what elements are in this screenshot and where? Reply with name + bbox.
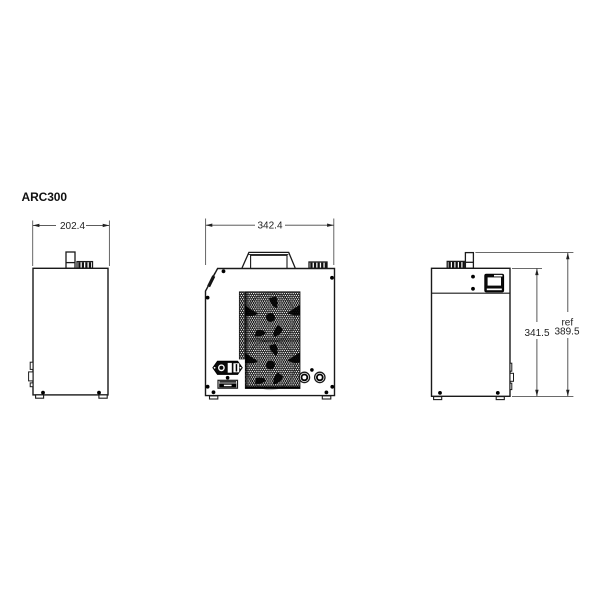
svg-text:342.4: 342.4: [257, 221, 282, 232]
svg-text:341.5: 341.5: [524, 328, 549, 339]
svg-text:ARC300: ARC300: [22, 190, 68, 204]
svg-text:202.4: 202.4: [60, 221, 85, 232]
svg-text:389.5: 389.5: [554, 327, 579, 338]
